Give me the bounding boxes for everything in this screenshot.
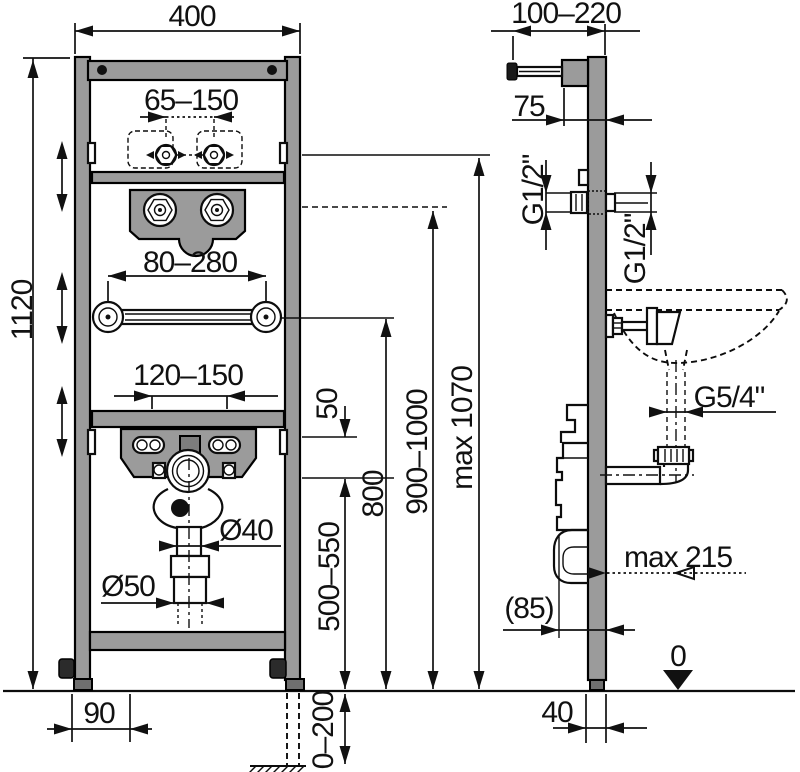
outlet-pipe-50	[174, 577, 206, 603]
screw-hole	[97, 65, 107, 75]
lower-crossbar	[92, 411, 284, 427]
dim-rim-height: 900–1000	[401, 389, 434, 515]
dim-foot-width: 90	[83, 697, 115, 730]
dim-trap-offset: (85)	[504, 592, 553, 625]
dim-stud-height: 800	[357, 470, 390, 517]
stud-right	[251, 302, 281, 332]
dim-leg-adjust: 0–200	[307, 690, 340, 769]
foot-adjuster-left	[59, 659, 74, 678]
rail-tab	[88, 143, 95, 163]
floor-zero-marker	[663, 670, 693, 690]
wall-bracket-body	[562, 60, 588, 86]
dim-bracket-offset: 75	[513, 90, 545, 123]
rail-tab	[88, 430, 95, 454]
dim-wall-bracket-range: 100–220	[511, 0, 621, 30]
dim-water-conn-spacing: 65–150	[144, 84, 238, 117]
side-rail	[588, 57, 606, 680]
drain-adapter	[171, 556, 209, 577]
faucet	[606, 308, 680, 344]
rail-tab	[280, 143, 287, 163]
rail-tab	[280, 430, 287, 454]
dim-gap-50: 50	[311, 388, 344, 420]
water-conn-hex-right	[194, 145, 234, 165]
pipe-clamp	[654, 447, 693, 464]
stud-rail	[122, 310, 254, 324]
water-conn-fitting-side	[571, 191, 648, 214]
dim-profile-depth: 40	[541, 696, 573, 729]
dim-drain-reach: max 215	[624, 541, 732, 574]
bolt-slot-right	[209, 437, 240, 453]
side-view-dimensions: 100–220 75 G1/2" G1/2" G5/4" max 215 (85…	[491, 0, 776, 743]
bottom-crossbar	[90, 632, 285, 650]
drawing-canvas: 400 1120 65–150 80–280 120–150 Ø40 Ø50	[0, 0, 800, 772]
water-conn-hex-left	[146, 145, 186, 165]
foot-left	[74, 679, 92, 690]
dim-floor-level: 0	[670, 640, 686, 673]
rail-clip	[579, 170, 588, 185]
dim-tap-conn-height: max 1070	[446, 366, 479, 490]
dim-drain-pipe-dia: Ø40	[219, 514, 273, 547]
dim-stud-spacing: 80–280	[143, 246, 237, 279]
top-crossbar	[88, 61, 287, 80]
side-foot	[590, 680, 604, 690]
installation-frame-technical-drawing: 400 1120 65–150 80–280 120–150 Ø40 Ø50	[0, 0, 800, 772]
foot-right	[286, 679, 304, 690]
dim-water-conn-rear: G1/2"	[619, 213, 652, 284]
stud-left	[93, 302, 123, 332]
foot-adjuster-right	[270, 659, 286, 678]
dim-frame-height: 1120	[6, 279, 39, 340]
screw-hole	[267, 65, 277, 75]
dim-outlet-pipe-dia: Ø50	[101, 570, 155, 603]
dim-frame-width: 400	[168, 0, 215, 33]
drain-elbow	[600, 464, 694, 484]
dim-bolt-slot-spacing: 120–150	[133, 359, 243, 392]
dim-water-conn-front: G1/2"	[517, 154, 550, 225]
wall-anchor	[507, 63, 517, 80]
dim-drain-conn: G5/4"	[694, 381, 765, 414]
adjust-arrow	[57, 272, 68, 344]
upper-crossbar	[92, 172, 284, 183]
bolt-slot-left	[133, 437, 164, 453]
plate-fitting-left	[144, 194, 176, 226]
plate-fitting-right	[201, 194, 233, 226]
trap-body	[154, 489, 223, 528]
dim-drain-height: 500–550	[313, 522, 346, 632]
adjust-arrow	[57, 141, 68, 212]
ground-hatch	[249, 766, 306, 772]
adjust-arrow	[57, 386, 68, 457]
